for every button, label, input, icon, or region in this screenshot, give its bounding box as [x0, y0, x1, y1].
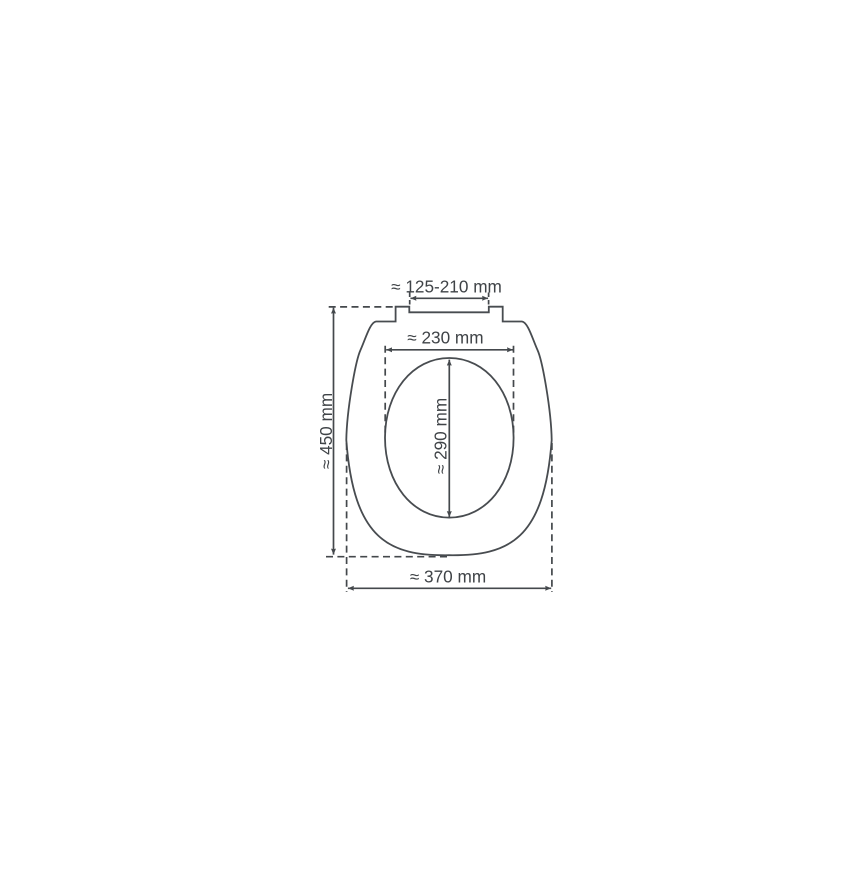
- svg-text:≈ 230 mm: ≈ 230 mm: [407, 328, 483, 348]
- svg-text:≈ 125-210 mm: ≈ 125-210 mm: [391, 276, 502, 296]
- svg-text:≈ 370 mm: ≈ 370 mm: [410, 567, 486, 587]
- svg-text:≈ 290 mm: ≈ 290 mm: [431, 398, 451, 474]
